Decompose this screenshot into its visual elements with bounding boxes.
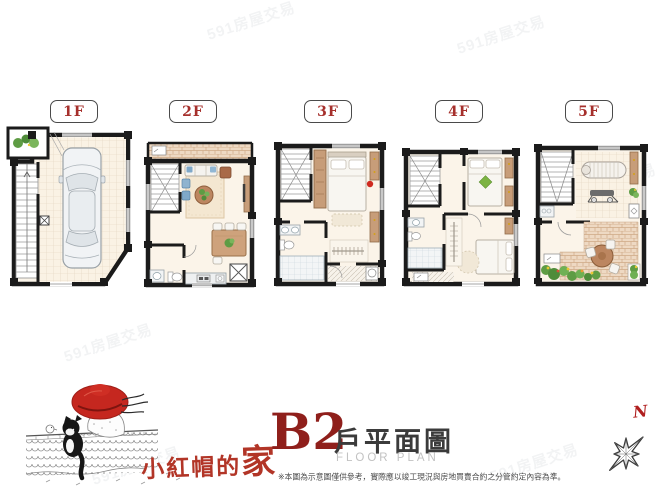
stairs-3f (281, 149, 311, 201)
disclaimer-text: ※本圖為示意圖僅供參考，實際應以竣工現況與房地買賣合約之分管約定內容為準。 (278, 470, 565, 482)
watermark: 591房屋交易 (61, 318, 155, 366)
shower-area (280, 256, 324, 280)
lounge-chair (582, 162, 627, 178)
plan-title-en: FLOOR PLAN (336, 452, 439, 464)
floor-plan-page: 591房屋交易 591房屋交易 591房屋交易 591房屋交易 591房屋交易 … (0, 0, 660, 495)
bird-icon (46, 425, 57, 433)
brand-script-prefix: 小紅帽的 (141, 453, 242, 483)
floor-plan-1f (4, 112, 136, 290)
bed (468, 158, 502, 206)
floor-plan-4f (398, 112, 524, 290)
stairs-2f (151, 164, 179, 212)
coffee-table (195, 186, 213, 204)
compass-north-label: N (632, 401, 649, 421)
car-icon (59, 148, 105, 268)
watermark: 591房屋交易 (454, 10, 548, 58)
floor-plan-3f (270, 112, 390, 290)
stairs-1f (16, 164, 38, 278)
brand-script: 小紅帽的家 (140, 434, 272, 488)
girl-icon (72, 384, 148, 437)
bed (328, 152, 366, 211)
wardrobe (314, 150, 326, 208)
bed (476, 240, 514, 274)
compass: N (600, 400, 656, 490)
watermark: 591房屋交易 (204, 0, 298, 45)
floor-plan-2f (140, 112, 260, 290)
stairs-5f (541, 152, 573, 202)
floor-plan-5f (532, 112, 650, 290)
stairs-4f (410, 156, 440, 206)
